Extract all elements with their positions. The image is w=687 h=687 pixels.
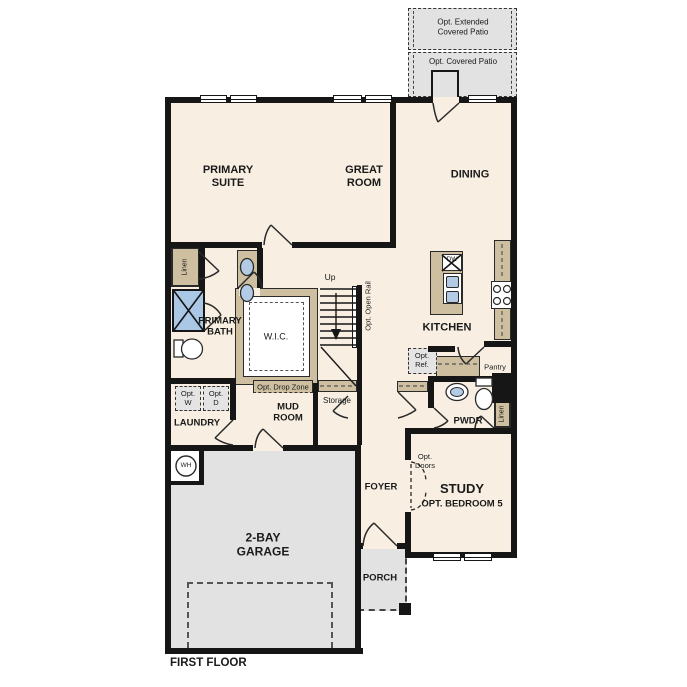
counter-dash-group — [320, 244, 502, 386]
study-label: STUDY — [440, 481, 484, 497]
stair-treads — [320, 289, 356, 345]
pwdr-toilet-bowl — [476, 389, 493, 410]
plan-annotations-svg — [0, 0, 687, 687]
linen-right-label: Linen — [499, 405, 506, 422]
wic-label: W.I.C. — [264, 332, 289, 343]
pantry-label: Pantry — [484, 363, 506, 372]
storage-label: Storage — [323, 396, 351, 406]
opt-open-rail-label: Opt. Open Rail — [364, 281, 373, 331]
opt-drop-zone-label: Opt. Drop Zone — [257, 383, 309, 392]
opt-extended-patio-label: Opt. Extended Covered Patio — [437, 17, 488, 36]
opt-dryer-label: Opt. D — [209, 389, 223, 407]
opt-doors-label: Opt. Doors — [415, 452, 435, 470]
opt-ref-label: Opt. Ref. — [415, 351, 429, 369]
door-front — [363, 523, 397, 546]
stair-diagonal — [321, 347, 356, 386]
dining-label: DINING — [451, 168, 490, 181]
door-primary-bath — [199, 252, 219, 279]
primary-suite-label: PRIMARY SUITE — [203, 164, 253, 190]
first-floor-title: FIRST FLOOR — [170, 657, 247, 669]
up-label: Up — [325, 272, 336, 282]
door-kitchen-hall — [398, 392, 416, 418]
linen-left-label: Linen — [182, 258, 189, 275]
door-primary-suite — [264, 225, 292, 245]
mud-room-label: MUD ROOM — [273, 402, 303, 425]
door-garage-mudroom — [255, 429, 283, 448]
dishwasher-label: DW — [447, 256, 458, 264]
stairs-group — [320, 289, 356, 386]
pwdr-toilet-tank — [476, 378, 492, 386]
garage-label: 2-BAY GARAGE — [237, 531, 290, 560]
door-pantry — [458, 347, 484, 364]
toilet-bowl — [182, 339, 203, 359]
water-heater-label: WH — [181, 462, 192, 470]
floor-plan: Opt. Extended Covered Patio Opt. Covered… — [0, 0, 687, 687]
door-patio — [433, 103, 459, 122]
pwdr-sink-basin — [451, 388, 464, 397]
door-pwdr — [434, 408, 448, 428]
kitchen-label: KITCHEN — [423, 321, 472, 334]
opt-bedroom-5-label: OPT. BEDROOM 5 — [421, 498, 502, 509]
great-room-label: GREAT ROOM — [345, 164, 383, 190]
laundry-label: LAUNDRY — [174, 417, 220, 428]
pwdr-label: PWDR — [453, 415, 482, 426]
opt-washer-label: Opt. W — [181, 389, 195, 407]
vanity-sink-2 — [241, 285, 254, 302]
vanity-sink-1 — [241, 259, 254, 276]
primary-bath-label: PRIMARY BATH — [198, 316, 241, 339]
foyer-label: FOYER — [365, 481, 398, 492]
opt-covered-patio-label: Opt. Covered Patio — [429, 57, 497, 67]
range-burners — [494, 286, 511, 305]
porch-label: PORCH — [363, 572, 397, 583]
